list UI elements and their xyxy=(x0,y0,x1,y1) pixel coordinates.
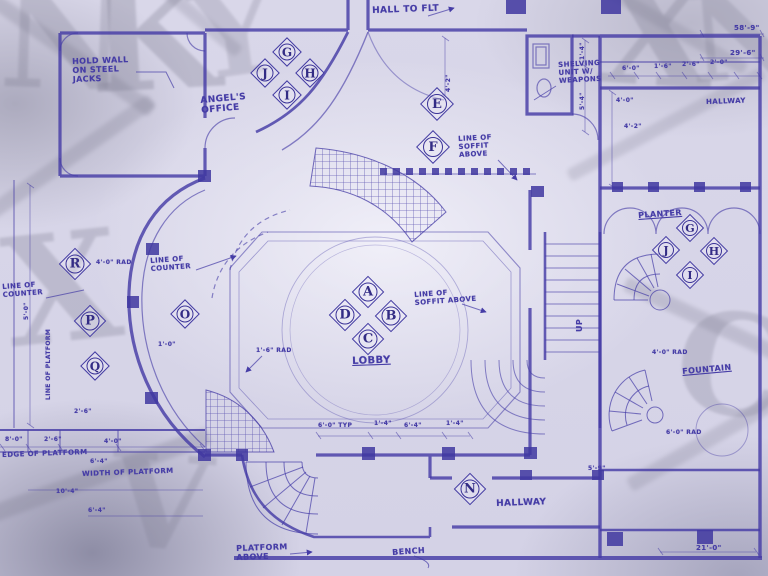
dim-6-0-typ: 6'-0" TYP xyxy=(318,423,352,430)
keynote-callout-o: O xyxy=(175,304,196,325)
dim-1-4-a: 1'-4" xyxy=(374,421,392,428)
keynote-letter: G xyxy=(682,220,698,236)
keynote-letter: F xyxy=(423,137,443,157)
dim-58-9: 58'-9" xyxy=(734,25,760,33)
dim-1-4-b: 1'-4" xyxy=(446,421,464,428)
room-label-hallway-top-right: HALLWAY xyxy=(706,98,746,107)
keynote-callout-p: P xyxy=(79,310,102,333)
room-label-fountain: FOUNTAIN xyxy=(682,364,732,377)
dim-2-6-b: 2'-6" xyxy=(74,409,92,416)
dim-29-6: 29'-6" xyxy=(730,50,756,58)
dim-5-4: 5'-4" xyxy=(580,92,587,110)
room-label-angels-office: ANGEL'S OFFICE xyxy=(200,92,247,116)
note-hold-wall: HOLD WALL ON STEEL JACKS xyxy=(72,56,129,85)
note-platform-above: PLATFORM ABOVE xyxy=(236,543,288,563)
note-bench: BENCH xyxy=(392,547,425,558)
keynote-callout-g: G xyxy=(277,42,298,63)
keynote-callout-j: J xyxy=(255,63,276,84)
dim-21-0: 21'-0" xyxy=(696,545,722,553)
keynote-letter: E xyxy=(427,94,447,114)
note-line-of-soffit-2: LINE OF SOFFIT ABOVE xyxy=(414,288,477,308)
keynote-callout-i: I xyxy=(680,265,700,285)
room-label-hallway-bottom: HALLWAY xyxy=(496,497,547,509)
dim-6-4-a: 6'-4" xyxy=(404,423,422,430)
keynote-letter: B xyxy=(382,307,401,326)
room-label-planter: PLANTER xyxy=(638,209,682,221)
keynote-callout-b: B xyxy=(380,305,403,328)
dim-4-0-rad-right: 4'-0" RAD xyxy=(652,350,688,357)
keynote-letter: J xyxy=(257,65,274,82)
keynote-letter: G xyxy=(279,44,296,61)
keynote-letter: Q xyxy=(87,358,104,375)
dim-1-6: 1'-6" xyxy=(654,64,672,71)
keynote-letter: N xyxy=(461,480,480,499)
dim-4-0-rad-left: 4'-0" RAD xyxy=(96,260,132,267)
dim-4-0-b: 4'-0" xyxy=(104,439,122,446)
keynote-letter: P xyxy=(81,312,100,331)
keynote-callout-h: H xyxy=(300,63,321,84)
note-line-of-platform: LINE OF PLATFORM xyxy=(46,329,53,400)
keynote-letter: C xyxy=(359,330,378,349)
keynote-letter: R xyxy=(66,255,85,274)
dim-4-2-b: 4'-2" xyxy=(446,74,453,92)
dim-1-4-c: 1'-4" xyxy=(580,42,587,60)
blueprint-page: KNYXNCXV xyxy=(0,0,768,576)
note-width-of-platform: WIDTH OF PLATFORM xyxy=(82,468,174,479)
note-line-of-counter-2: LINE OF COUNTER xyxy=(2,281,43,299)
keynote-letter: A xyxy=(359,283,378,302)
dim-10-4: 10'-4" xyxy=(56,489,78,496)
keynote-letter: H xyxy=(302,65,319,82)
keynote-letter: O xyxy=(177,306,194,323)
dim-6-4-c: 6'-4" xyxy=(88,508,106,515)
dim-2-0: 2'-0" xyxy=(710,60,728,67)
keynote-callout-c: C xyxy=(357,328,380,351)
note-edge-of-platform: EDGE OF PLATFORM xyxy=(2,449,88,460)
keynote-callout-f: F xyxy=(421,135,445,159)
keynote-letter: H xyxy=(706,243,722,259)
dim-1-0: 1'-0" xyxy=(158,342,176,349)
keynote-callout-j: J xyxy=(656,240,676,260)
dim-6-4-b: 6'-4" xyxy=(90,459,108,466)
keynote-letter: J xyxy=(658,242,674,258)
keynote-letter: I xyxy=(279,87,296,104)
keynote-callout-r: R xyxy=(64,253,87,276)
annotation-labels-layer: HALL TO FLTHOLD WALL ON STEEL JACKSANGEL… xyxy=(0,0,768,576)
note-line-of-soffit-1: LINE OF SOFFIT ABOVE xyxy=(458,134,493,159)
dim-5-9: 5'-9" xyxy=(588,466,606,473)
room-label-hall-to-flt: HALL TO FLT xyxy=(372,4,439,16)
keynote-callout-i: I xyxy=(277,85,298,106)
dim-5-0: 5'-0" xyxy=(24,302,31,320)
keynote-callout-g: G xyxy=(680,218,700,238)
keynote-callout-q: Q xyxy=(85,356,106,377)
dim-4-2-a: 4'-2" xyxy=(624,124,642,131)
keynote-letter: I xyxy=(682,267,698,283)
keynote-callout-e: E xyxy=(425,92,449,116)
dim-6-0-rad: 6'-0" RAD xyxy=(666,430,702,437)
stair-direction-up: UP xyxy=(576,319,585,332)
dim-2-6-a: 2'-6" xyxy=(682,62,700,69)
dim-6-0: 6'-0" xyxy=(622,66,640,73)
dim-2-6-c: 2'-6" xyxy=(44,437,62,444)
note-shelving: SHELVING UNIT W/ WEAPONS xyxy=(558,60,602,86)
dim-8-0: 8'-0" xyxy=(5,437,23,444)
keynote-callout-h: H xyxy=(704,241,724,261)
dim-4-0-a: 4'-0" xyxy=(616,98,634,105)
keynote-callout-d: D xyxy=(334,304,357,327)
note-line-of-counter-1: LINE OF COUNTER xyxy=(150,255,191,273)
dim-1-6-rad: 1'-6" RAD xyxy=(256,348,292,355)
keynote-callout-n: N xyxy=(459,478,482,501)
room-label-lobby: LOBBY xyxy=(352,355,391,368)
keynote-letter: D xyxy=(336,306,355,325)
keynote-callout-a: A xyxy=(357,281,380,304)
